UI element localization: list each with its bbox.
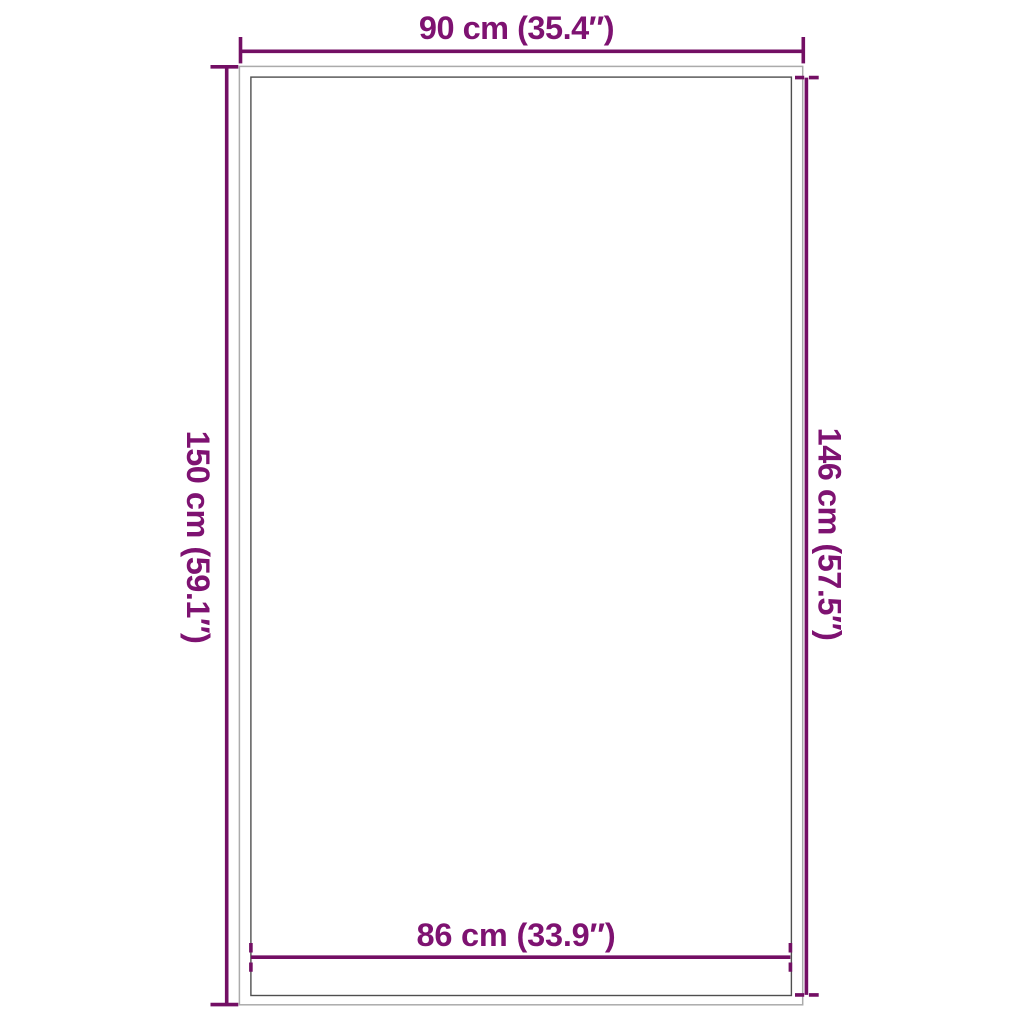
svg-text:146 cm (57.5″): 146 cm (57.5″) (812, 428, 848, 641)
svg-text:86 cm (33.9″): 86 cm (33.9″) (416, 917, 615, 953)
svg-text:150 cm (59.1″): 150 cm (59.1″) (180, 431, 216, 644)
svg-text:90 cm (35.4″): 90 cm (35.4″) (419, 10, 614, 46)
